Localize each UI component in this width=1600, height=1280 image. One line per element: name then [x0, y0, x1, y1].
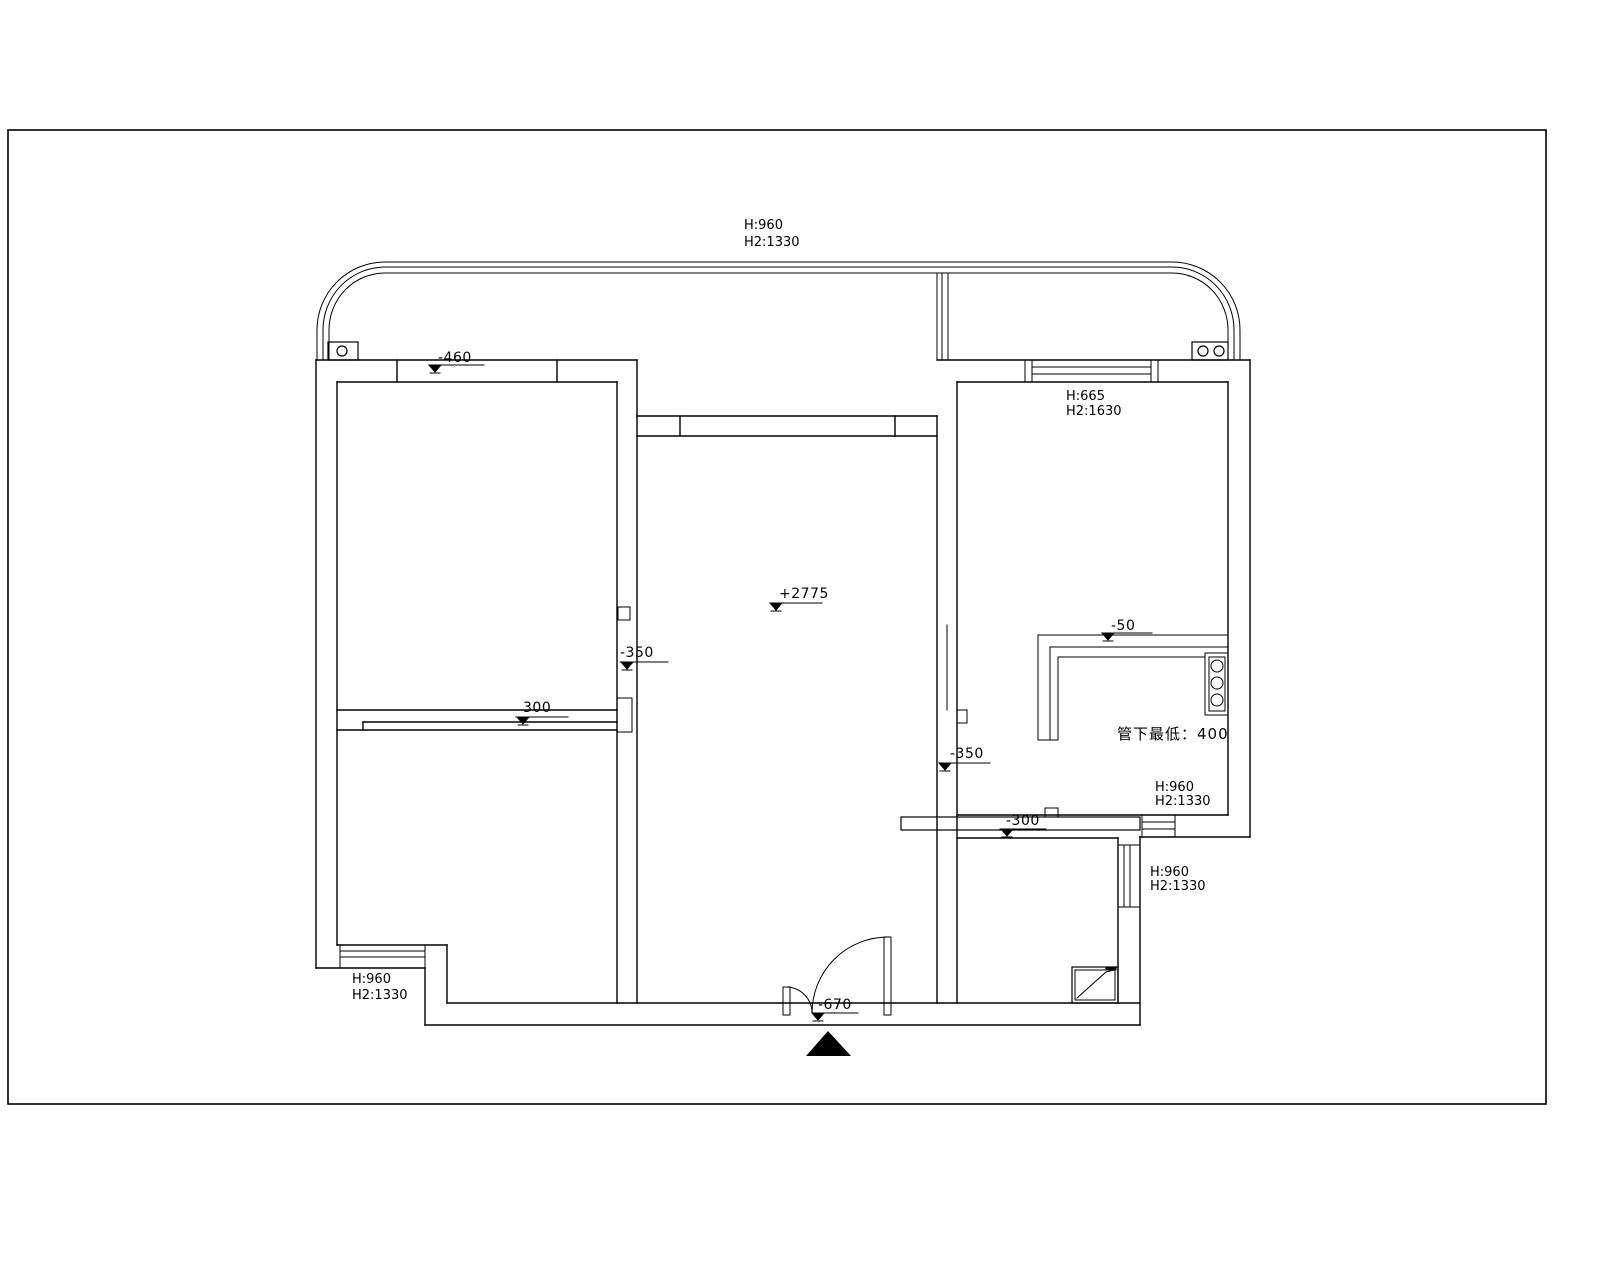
label-bedroom2-window-h: H:960	[352, 973, 391, 988]
page-border	[8, 130, 1546, 1104]
balcony-railing	[317, 262, 1240, 360]
label-pipe-note: 管下最低：400	[1117, 726, 1229, 743]
label-elevation-bedroom-divider: 300	[523, 700, 551, 716]
label-elevation-kitchen-counter: -50	[1111, 618, 1135, 634]
label-kitchen-window-h2: H2:1630	[1066, 405, 1122, 420]
column-left-icon	[328, 342, 358, 360]
elevation-symbol-balcony-left	[429, 365, 484, 373]
elevation-symbol-living-east	[939, 763, 990, 771]
shower-tray-icon	[1072, 967, 1118, 1003]
label-bathroom-window-h2: H2:1330	[1150, 880, 1206, 895]
north-arrow-icon	[806, 1031, 851, 1056]
label-elevation-entry: -670	[818, 997, 852, 1013]
label-elevation-living-center: +2775	[779, 586, 829, 602]
elevation-symbol-living-west	[620, 662, 668, 670]
wall-lines	[316, 360, 1250, 1025]
column-right-icon	[1192, 342, 1228, 360]
label-balcony-h2: H2:1330	[744, 236, 800, 251]
elevation-symbol-living-center	[770, 603, 822, 611]
label-kitchen-bottom-window-h2: H2:1330	[1155, 795, 1211, 810]
label-bedroom2-window-h2: H2:1330	[352, 989, 408, 1004]
label-elevation-living-west: -350	[620, 645, 654, 661]
elevation-symbol-bedroom-divider	[516, 717, 568, 725]
label-balcony-h: H:960	[744, 219, 783, 234]
floor-plan-page: H:960 H2:1330 H:665 H2:1630 -460 300 -35…	[0, 0, 1600, 1280]
elevation-symbols	[429, 365, 1152, 1021]
floor-plan-drawing	[0, 0, 1600, 1280]
stove-icon	[1205, 653, 1228, 715]
label-elevation-bathroom-sill: -300	[1006, 813, 1040, 829]
label-elevation-balcony-left: -460	[438, 350, 472, 366]
label-kitchen-window-h: H:665	[1066, 390, 1105, 405]
balcony-window-mullion	[937, 274, 948, 360]
elevation-symbol-entry	[812, 1013, 858, 1021]
elevation-symbol-kitchen-counter	[1102, 633, 1152, 641]
label-elevation-living-east: -350	[950, 746, 984, 762]
